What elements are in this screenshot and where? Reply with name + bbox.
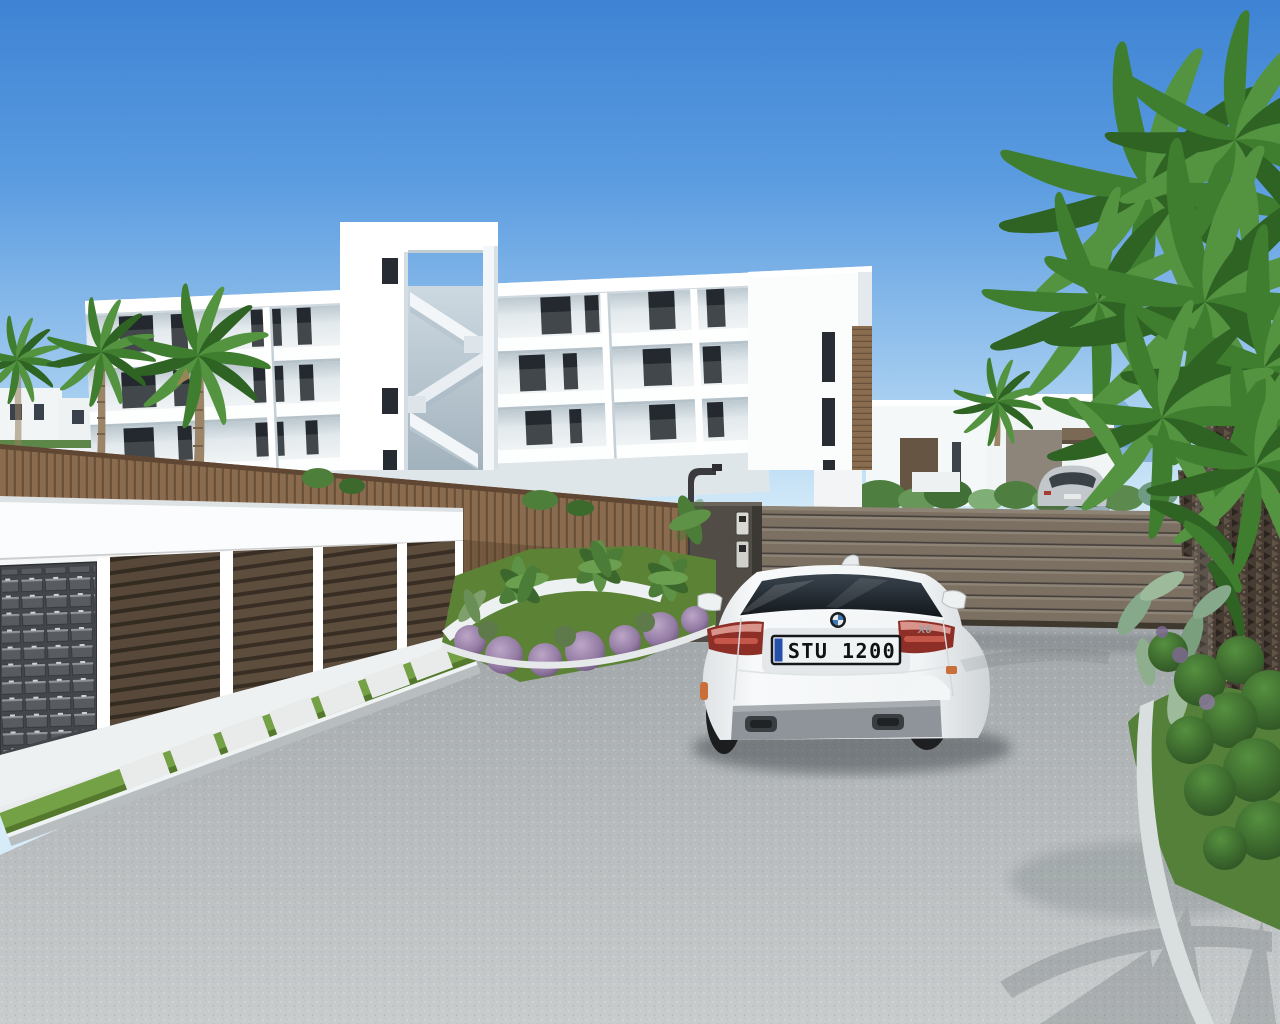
building-gable (748, 266, 872, 470)
rear-bumper (731, 699, 942, 740)
license-plate-text: STU 1200 (788, 639, 896, 663)
stair-tower (340, 222, 498, 470)
left-reflector (700, 682, 708, 700)
model-badge: X6 (917, 624, 932, 636)
architectural-render: X6 STU 1200 (0, 0, 1280, 1024)
license-plate: STU 1200 (772, 636, 900, 664)
gable-wood-cladding (852, 326, 872, 470)
scene-canvas: X6 STU 1200 (0, 0, 1280, 1024)
mailbox-bank (0, 562, 97, 757)
lamp-head (712, 464, 722, 471)
right-reflector (946, 666, 957, 674)
left-mirror (698, 593, 722, 610)
bmw-roundel-icon (830, 612, 846, 628)
